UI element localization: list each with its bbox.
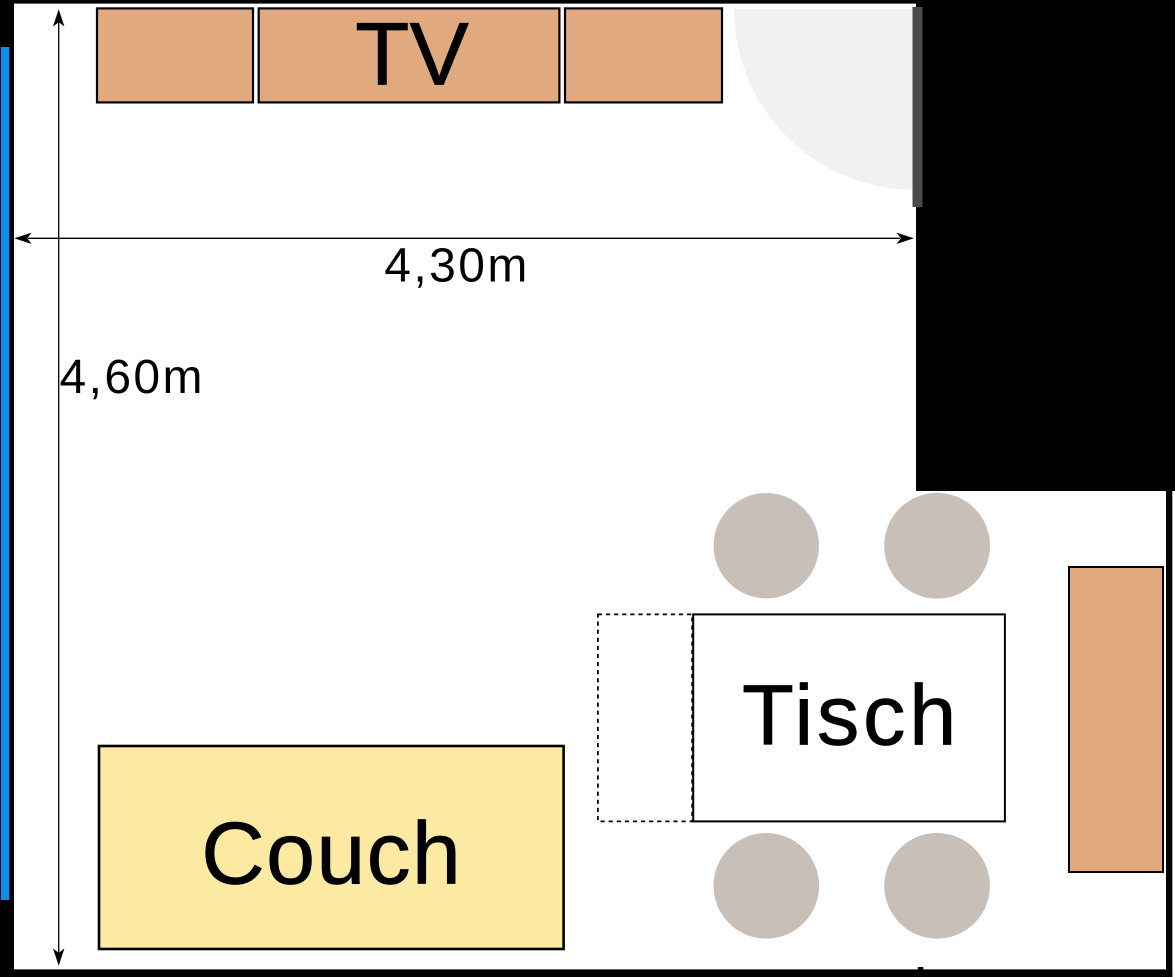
svg-text:Couch: Couch: [201, 803, 462, 902]
svg-text:4,60m: 4,60m: [60, 351, 205, 404]
svg-text:TV: TV: [355, 3, 469, 103]
svg-text:Tisch: Tisch: [742, 669, 960, 764]
svg-text:4,30m: 4,30m: [384, 240, 529, 293]
